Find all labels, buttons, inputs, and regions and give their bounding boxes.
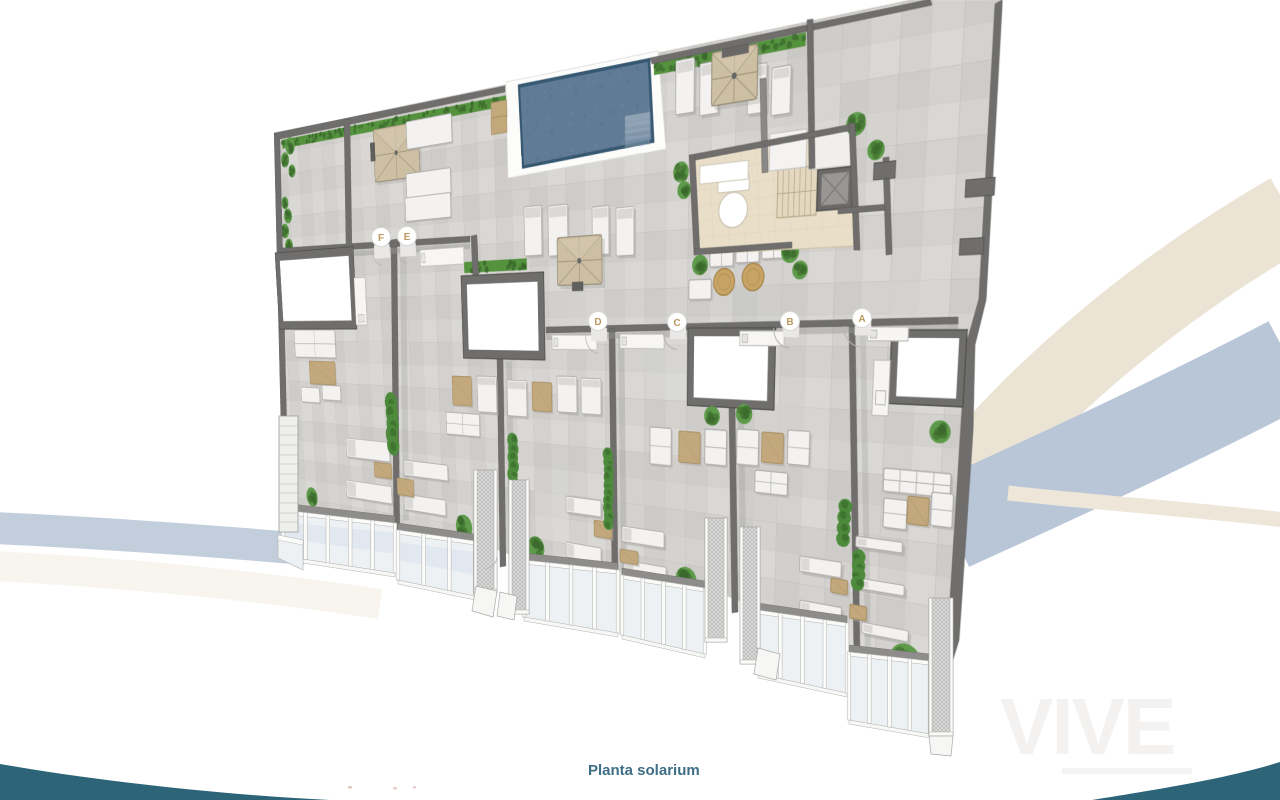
svg-text:VIVE: VIVE [1000, 682, 1174, 771]
svg-text:C: C [673, 318, 680, 329]
svg-text:D: D [594, 317, 601, 328]
svg-text:Planta solarium: Planta solarium [588, 762, 700, 779]
svg-text:E: E [404, 232, 411, 243]
svg-text:A: A [858, 314, 865, 325]
svg-text:F: F [378, 233, 384, 244]
svg-text:B: B [786, 317, 793, 328]
